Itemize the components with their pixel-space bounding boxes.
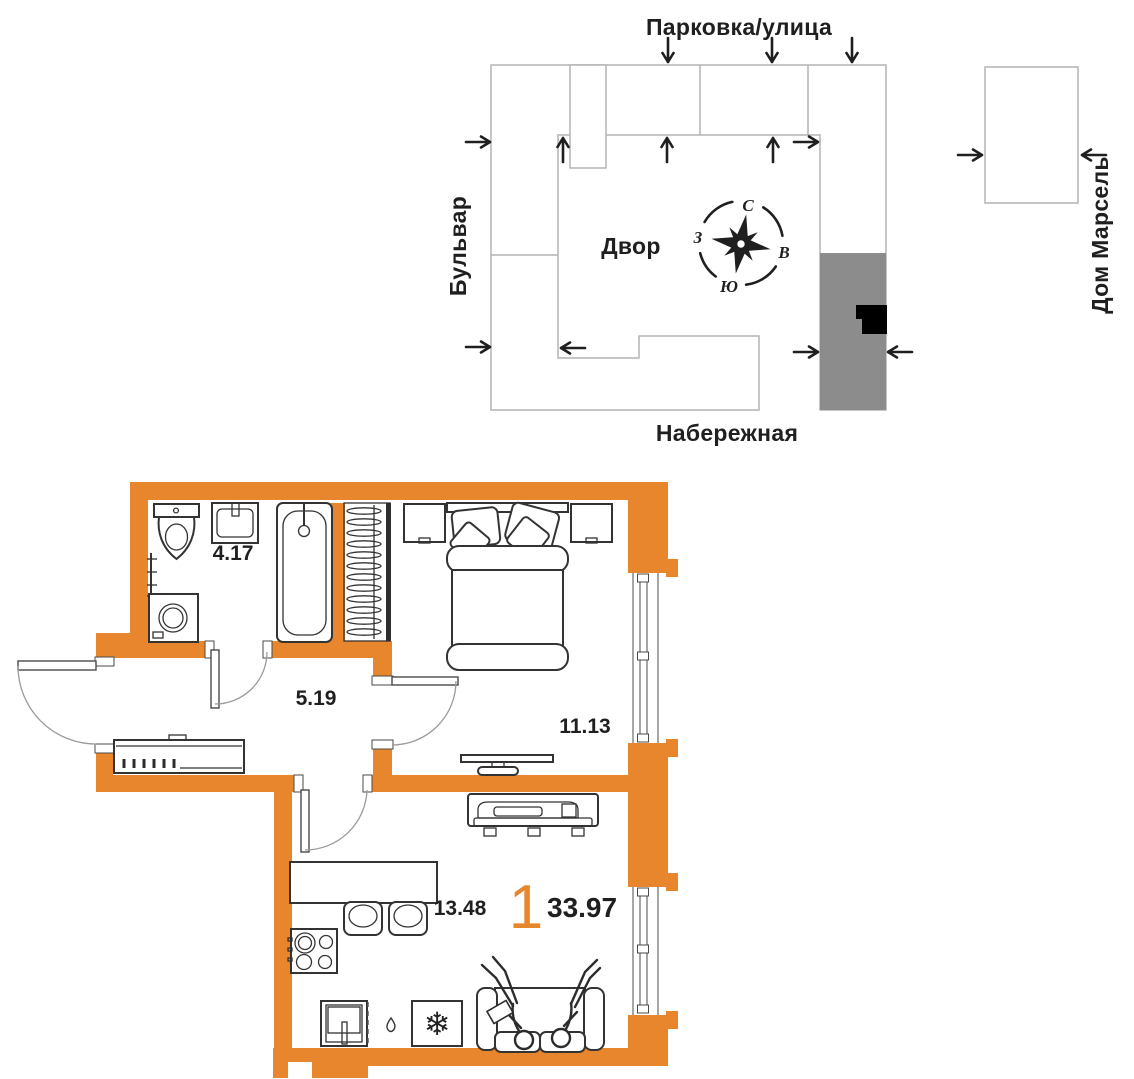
washing-machine [149, 594, 198, 642]
apartment-plan-page: Парковка/улица Набережная Бульвар Дом Ма… [0, 0, 1134, 1079]
room-area-label: 13.48 [434, 897, 487, 920]
neighbour-building [985, 67, 1078, 203]
building-section-protrusion [570, 65, 606, 168]
bathroom-sink [212, 503, 258, 543]
room-area-label: 11.13 [559, 715, 610, 738]
kitchen-sink [321, 1001, 367, 1046]
kitchen-door [294, 775, 372, 852]
toilet [154, 504, 199, 559]
towel-rail [147, 553, 157, 599]
shoe-cabinet [114, 735, 244, 773]
compass-east: В [777, 243, 789, 262]
double-bed [447, 501, 568, 670]
room-area-label: 4.17 [213, 542, 254, 565]
compass-rose: С В Ю З [693, 196, 790, 296]
rooms-count: 1 [509, 873, 543, 942]
bar-stool [344, 902, 382, 935]
compass-west: З [693, 228, 703, 247]
street-label-top: Парковка/улица [646, 14, 832, 40]
compass-star-icon [706, 209, 776, 279]
fridge: ❄ [412, 1001, 462, 1046]
compass-south: Ю [719, 277, 738, 296]
street-label-bottom: Набережная [656, 420, 798, 446]
tv-stand [468, 794, 598, 836]
street-label-left: Бульвар [445, 196, 471, 296]
floor-plan: 4.17 [18, 482, 678, 1079]
nightstand [404, 504, 445, 543]
snowflake-icon: ❄ [424, 1005, 451, 1043]
compass-north: С [742, 196, 754, 215]
neighbour-building-label: Дом Марсель [1087, 156, 1113, 314]
kitchen-counter [290, 862, 437, 903]
room-area-label: 5.19 [296, 687, 337, 710]
wardrobe [344, 503, 391, 641]
nightstand [571, 504, 612, 543]
courtyard-label: Двор [601, 233, 661, 259]
total-area-label: 33.97 [547, 892, 617, 923]
bathtub [277, 503, 332, 642]
bar-stool [389, 902, 427, 935]
stove [288, 929, 337, 973]
dishwasher [368, 1002, 395, 1045]
site-plan: Парковка/улица Набережная Бульвар Дом Ма… [445, 14, 1113, 446]
tv-bedroom [461, 755, 553, 775]
